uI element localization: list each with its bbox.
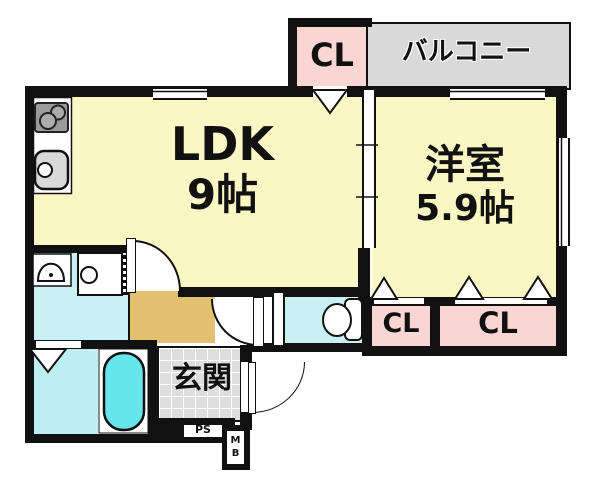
folding-door-triangle-western-1-icon bbox=[371, 278, 397, 299]
ldk-room-label: LDK 9帖 bbox=[140, 118, 305, 219]
balcony-label: バルコニー bbox=[366, 38, 567, 68]
ldk-name: LDK bbox=[140, 118, 305, 171]
toilet-icon bbox=[323, 299, 362, 340]
folding-door-triangle-bathroom-icon bbox=[30, 349, 66, 372]
pipe-space-label: PS bbox=[182, 424, 224, 437]
entrance-label: 玄関 bbox=[157, 362, 247, 397]
kitchen-counter-icon bbox=[34, 98, 72, 194]
closet-bottom-right-label: CL bbox=[440, 307, 556, 340]
folding-door-triangle-western-3-icon bbox=[524, 277, 552, 299]
washing-machine-icon bbox=[78, 253, 122, 295]
closet-top-label: CL bbox=[297, 37, 367, 74]
closet-bottom-left-label: CL bbox=[372, 308, 430, 339]
folding-door-triangle-western-2-icon bbox=[455, 277, 483, 299]
meter-box-label: MB bbox=[227, 434, 244, 460]
western-room-name: 洋室 bbox=[375, 142, 555, 188]
ldk-size: 9帖 bbox=[140, 171, 305, 219]
bathtub-icon bbox=[99, 349, 148, 433]
western-room-size: 5.9帖 bbox=[375, 188, 555, 229]
floor-plan: LDK 9帖 洋室 5.9帖 バルコニー CL CL CL 玄関 PS MB bbox=[0, 0, 600, 489]
folding-door-triangle-closet-top-icon bbox=[313, 90, 347, 113]
western-room-label: 洋室 5.9帖 bbox=[375, 142, 555, 229]
washbasin-icon bbox=[33, 254, 71, 286]
